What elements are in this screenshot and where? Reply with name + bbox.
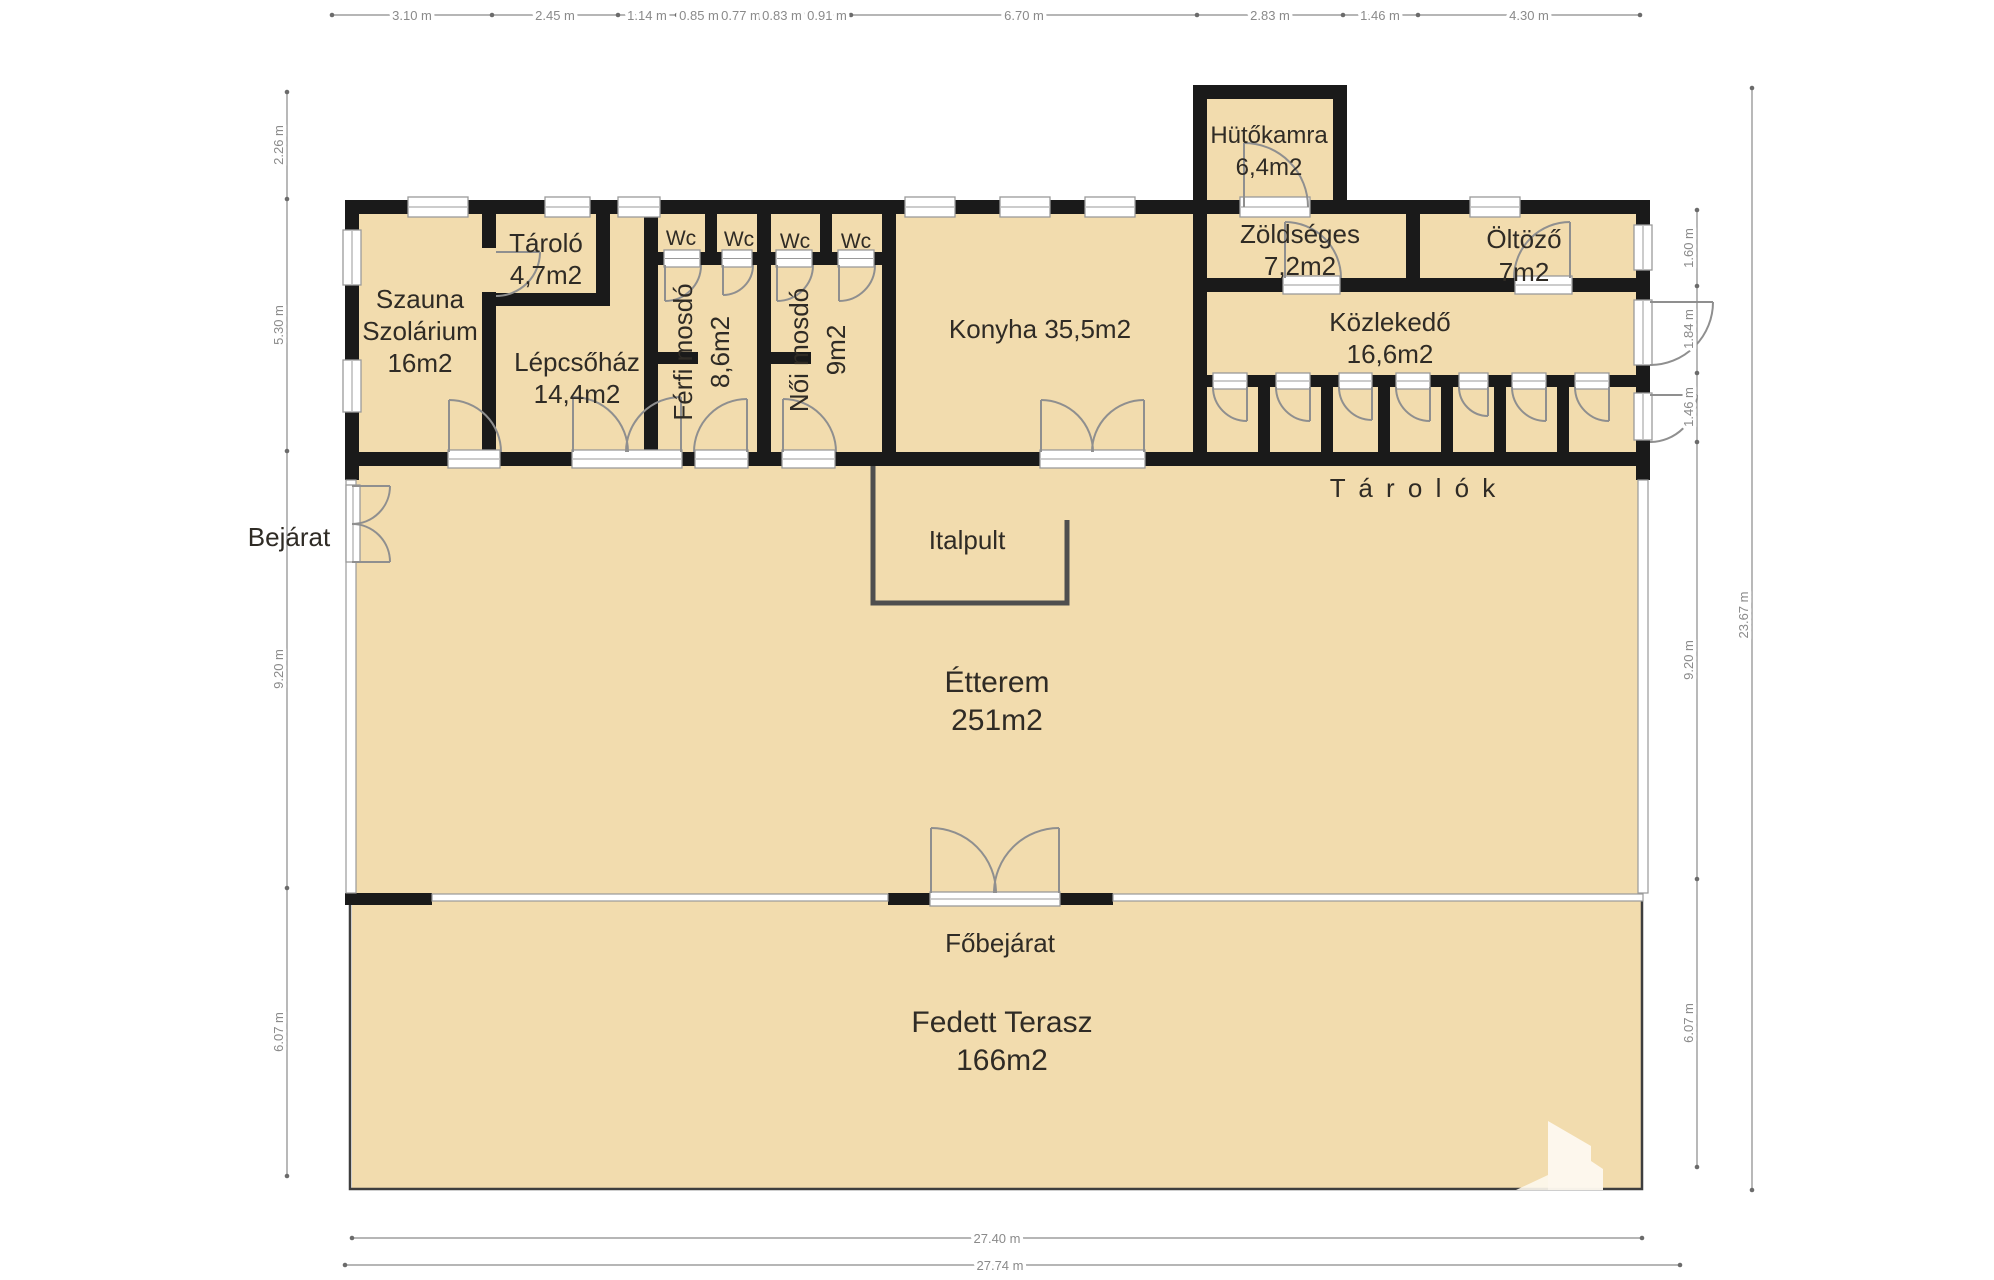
room-label-szauna-line2: Szolárium [362, 316, 478, 346]
dim-top-8: 2.83 m [1250, 8, 1290, 23]
room-label-tarolo: Tároló [509, 228, 583, 258]
wc-label-2: Wc [724, 228, 754, 251]
dim-right-3: 9.20 m [1681, 640, 1696, 680]
wc-label-1: Wc [666, 227, 696, 250]
storage-row-label: T á r o l ó k [1330, 473, 1499, 503]
dim-top-9: 1.46 m [1360, 8, 1400, 23]
dim-right-1: 1.84 m [1681, 309, 1696, 349]
dim-top-0: 3.10 m [392, 8, 432, 23]
room-area-etterem: 251m2 [951, 704, 1043, 737]
main-entrance-label: Főbejárat [945, 928, 1056, 958]
dim-bottom-inner: 27.40 m [974, 1231, 1021, 1246]
dim-top-3: 0.85 m [679, 8, 719, 23]
dim-right-4: 6.07 m [1681, 1003, 1696, 1043]
dim-top-5: 0.83 m [762, 8, 802, 23]
dim-left-0: 2.26 m [271, 125, 286, 165]
entrance-label: Bejárat [248, 522, 331, 552]
dim-right-0: 1.60 m [1681, 228, 1696, 268]
dim-top-10: 4.30 m [1509, 8, 1549, 23]
wc-label-4: Wc [841, 230, 871, 253]
room-area-noi-mosdo: 9m2 [821, 325, 851, 376]
dim-right-total: 23.67 m [1736, 592, 1751, 639]
room-label-szauna-line1: Szauna [376, 284, 465, 314]
dim-left-3: 6.07 m [271, 1012, 286, 1052]
room-area-terasz: 166m2 [956, 1044, 1048, 1077]
room-label-ferfi-mosdo: Férfi mosdó [668, 283, 698, 420]
room-label-noi-mosdo: Női mosdó [784, 288, 814, 412]
bar-counter-label: Italpult [929, 525, 1006, 555]
dim-left-2: 9.20 m [271, 649, 286, 689]
dim-top-4: 0.77 m [721, 8, 761, 23]
floor-plan-page: Hütőkamra 6,4m2 Zöldséges 7,2m2 Öltöző 7… [0, 0, 1994, 1280]
floor-plan-drawing: Hütőkamra 6,4m2 Zöldséges 7,2m2 Öltöző 7… [0, 0, 1994, 1280]
room-label-lepcsohaz: Lépcsőház [514, 347, 640, 377]
room-label-oltozo: Öltöző [1486, 224, 1561, 254]
dim-top-1: 2.45 m [535, 8, 575, 23]
dim-bottom-outer: 27.74 m [977, 1258, 1024, 1273]
dim-top-6: 0.91 m [807, 8, 847, 23]
room-label-zoldseges: Zöldséges [1240, 219, 1360, 249]
room-label-etterem: Étterem [944, 666, 1049, 699]
room-label-terasz: Fedett Terasz [911, 1006, 1092, 1039]
room-area-kozlekedo: 16,6m2 [1347, 339, 1434, 369]
room-label-kozlekedo: Közlekedő [1329, 307, 1450, 337]
room-area-ferfi-mosdo: 8,6m2 [705, 316, 735, 388]
room-area-szauna: 16m2 [387, 348, 452, 378]
room-label-hutokamra: Hütőkamra [1210, 122, 1328, 149]
room-area-tarolo: 4,7m2 [510, 260, 582, 290]
dim-left-1: 5.30 m [271, 305, 286, 345]
dim-top-7: 6.70 m [1004, 8, 1044, 23]
dim-right-2: 1.46 m [1681, 387, 1696, 427]
room-area-oltozo: 7m2 [1499, 257, 1550, 287]
room-area-hutokamra: 6,4m2 [1236, 154, 1303, 181]
dim-top-2: 1.14 m [627, 8, 667, 23]
room-area-zoldseges: 7,2m2 [1264, 251, 1336, 281]
room-area-lepcsohaz: 14,4m2 [534, 379, 621, 409]
wc-label-3: Wc [780, 230, 810, 253]
room-label-konyha: Konyha 35,5m2 [949, 314, 1131, 344]
